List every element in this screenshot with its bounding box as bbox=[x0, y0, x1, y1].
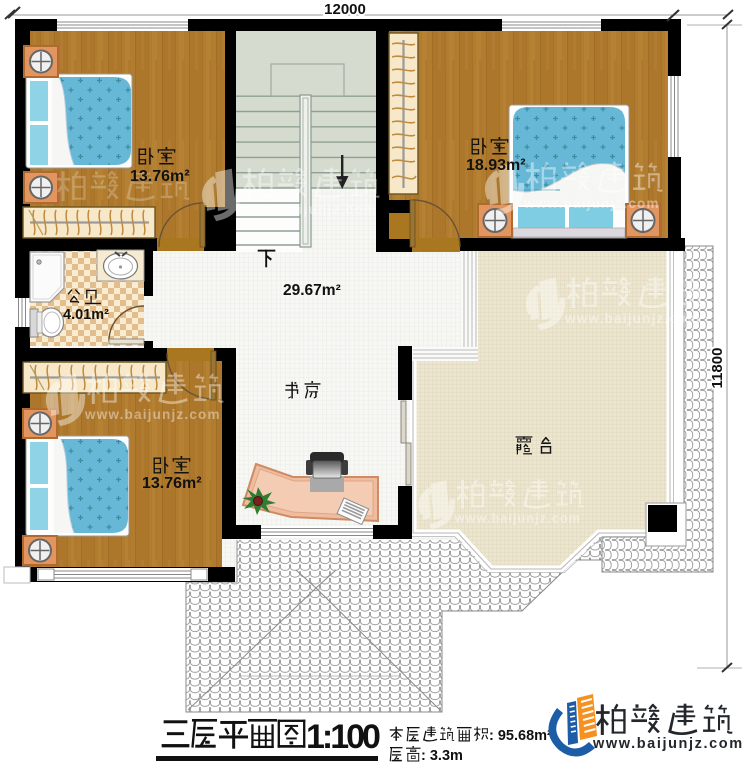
svg-text:29.67m²: 29.67m² bbox=[283, 282, 341, 299]
svg-text:13.76m²: 13.76m² bbox=[142, 475, 202, 492]
svg-text:18.93m²: 18.93m² bbox=[466, 157, 526, 174]
svg-text:1:100: 1:100 bbox=[306, 718, 380, 756]
svg-text:13.76m²: 13.76m² bbox=[130, 168, 190, 185]
svg-text:www.baijunjz.com: www.baijunjz.com bbox=[592, 736, 744, 752]
svg-text:12000: 12000 bbox=[324, 1, 366, 18]
svg-text:: 3.3m: : 3.3m bbox=[421, 748, 463, 764]
svg-text:11800: 11800 bbox=[709, 348, 726, 389]
svg-text:: 95.68m²: : 95.68m² bbox=[489, 728, 552, 744]
svg-text:4.01m²: 4.01m² bbox=[63, 307, 109, 323]
